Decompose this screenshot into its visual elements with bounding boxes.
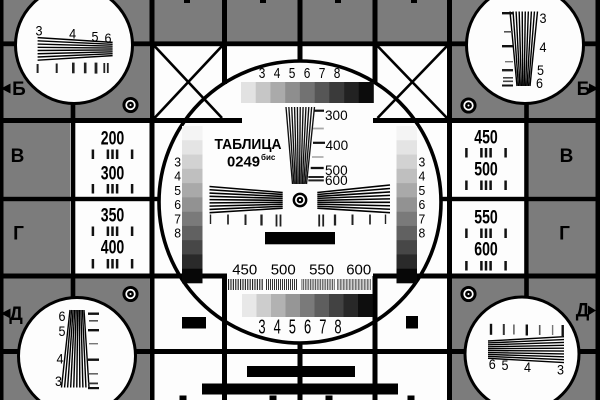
svg-text:6: 6 — [419, 198, 426, 212]
svg-text:3: 3 — [419, 155, 426, 169]
svg-text:6: 6 — [536, 75, 543, 91]
svg-text:8: 8 — [334, 316, 341, 339]
svg-text:4: 4 — [274, 316, 281, 339]
svg-text:6: 6 — [59, 308, 66, 324]
svg-text:7: 7 — [174, 212, 181, 226]
svg-text:6: 6 — [304, 65, 311, 82]
svg-text:7: 7 — [419, 212, 426, 226]
svg-text:3: 3 — [55, 373, 62, 389]
svg-text:550: 550 — [309, 262, 334, 279]
svg-text:8: 8 — [334, 65, 341, 82]
svg-text:8: 8 — [419, 227, 426, 241]
svg-text:3: 3 — [540, 10, 547, 26]
svg-text:4: 4 — [174, 170, 181, 184]
svg-text:350: 350 — [101, 206, 125, 227]
svg-text:450: 450 — [232, 262, 257, 279]
svg-text:5: 5 — [502, 357, 509, 373]
svg-text:6: 6 — [105, 30, 112, 46]
svg-text:3: 3 — [259, 65, 266, 82]
svg-text:5: 5 — [289, 65, 296, 82]
svg-text:3: 3 — [258, 316, 265, 339]
svg-text:5: 5 — [289, 316, 296, 339]
svg-text:300: 300 — [101, 164, 125, 185]
svg-text:4: 4 — [419, 170, 426, 184]
svg-text:0249: 0249 — [227, 155, 260, 171]
svg-text:4: 4 — [69, 26, 76, 42]
svg-text:Г: Г — [559, 224, 570, 245]
svg-text:6: 6 — [174, 198, 181, 212]
svg-text:500: 500 — [271, 262, 296, 279]
svg-text:ТАБЛИЦА: ТАБЛИЦА — [215, 137, 282, 153]
svg-text:450: 450 — [474, 128, 498, 149]
svg-text:Д: Д — [576, 301, 590, 322]
svg-text:Б: Б — [577, 79, 591, 100]
svg-text:7: 7 — [319, 316, 326, 339]
svg-text:400: 400 — [326, 138, 349, 153]
svg-text:600: 600 — [346, 262, 371, 279]
svg-text:300: 300 — [325, 108, 348, 123]
svg-text:3: 3 — [557, 362, 564, 378]
svg-text:5: 5 — [174, 184, 181, 198]
svg-text:В: В — [560, 146, 574, 167]
svg-text:500: 500 — [474, 160, 498, 181]
svg-text:200: 200 — [101, 129, 125, 150]
svg-text:600: 600 — [474, 240, 498, 261]
svg-text:6: 6 — [489, 356, 496, 372]
svg-text:5: 5 — [59, 323, 66, 339]
svg-text:4: 4 — [540, 39, 547, 55]
svg-text:4: 4 — [57, 351, 64, 367]
svg-text:400: 400 — [101, 238, 125, 259]
svg-text:4: 4 — [524, 359, 531, 375]
svg-text:8: 8 — [174, 227, 181, 241]
svg-text:5: 5 — [419, 184, 426, 198]
svg-text:Г: Г — [13, 224, 24, 245]
svg-text:В: В — [11, 146, 25, 167]
svg-text:Б: Б — [12, 79, 26, 100]
svg-text:Д: Д — [9, 304, 23, 325]
svg-text:6: 6 — [304, 316, 311, 339]
svg-text:7: 7 — [319, 65, 326, 82]
svg-text:3: 3 — [36, 23, 43, 39]
svg-text:4: 4 — [274, 65, 281, 82]
svg-text:3: 3 — [174, 155, 181, 169]
svg-text:550: 550 — [474, 208, 498, 229]
svg-text:600: 600 — [325, 173, 348, 188]
svg-text:5: 5 — [92, 29, 99, 45]
svg-text:бис: бис — [261, 153, 276, 162]
